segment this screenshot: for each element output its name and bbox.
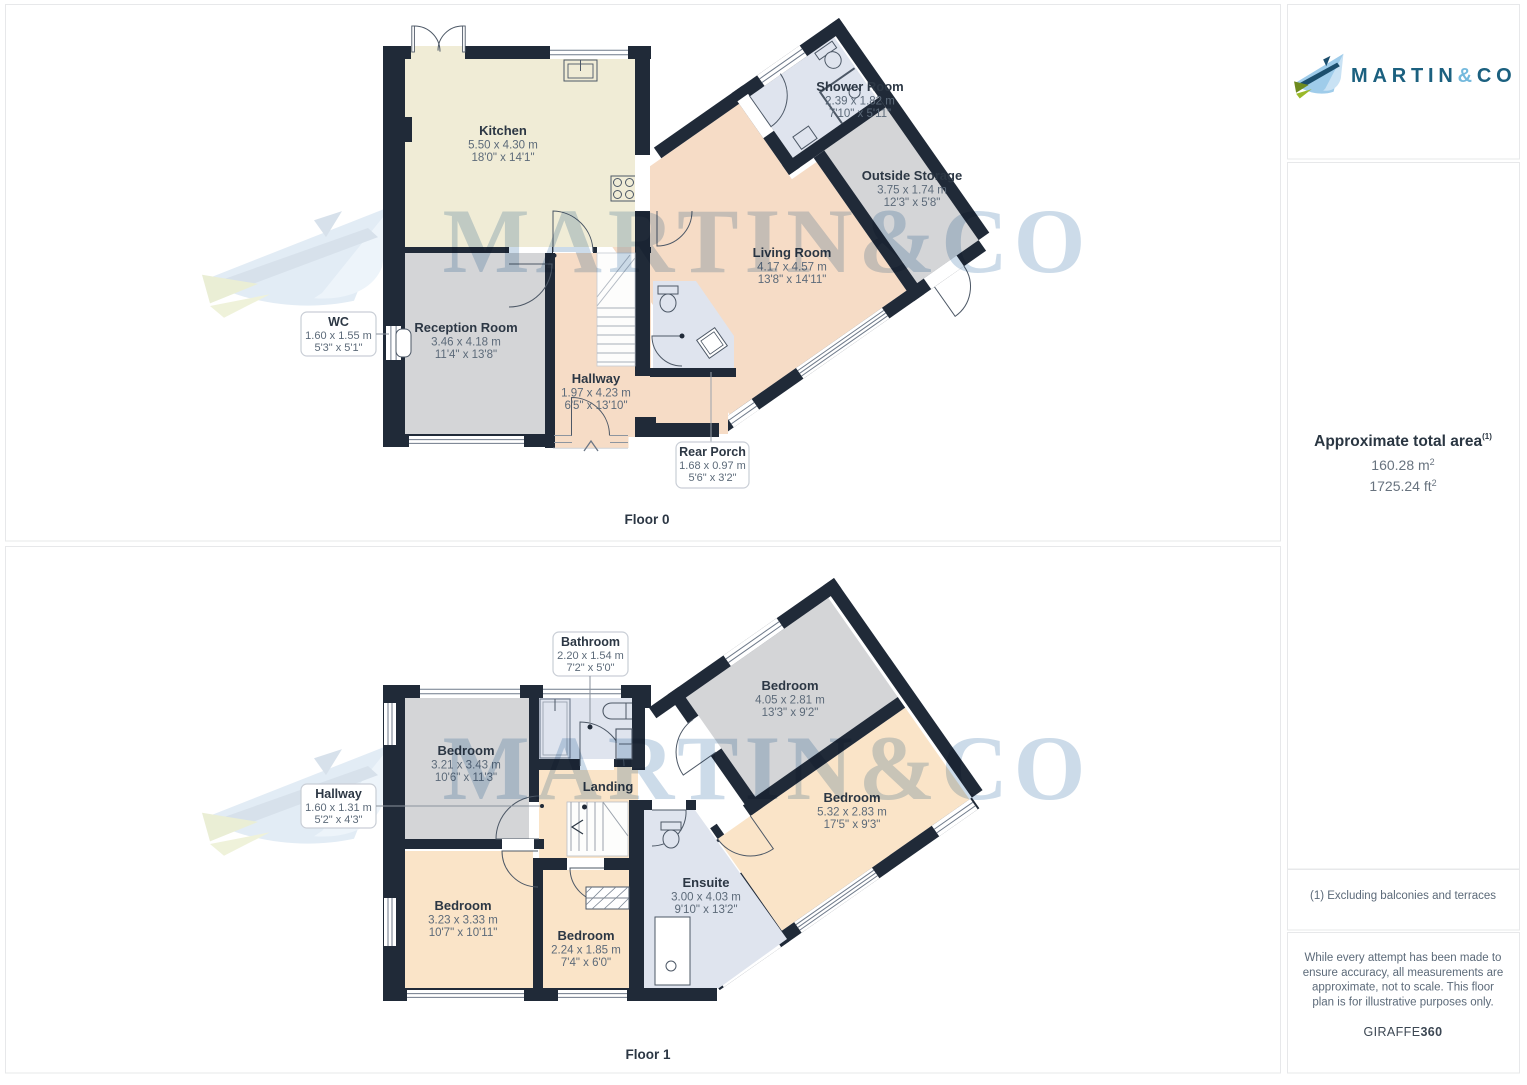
svg-text:Hallway: Hallway [572,371,621,386]
svg-text:GIRAFFE360: GIRAFFE360 [1363,1025,1442,1039]
svg-text:approximate, not to scale. Thi: approximate, not to scale. This floor [1312,982,1494,994]
svg-text:2.24 x 1.85 m: 2.24 x 1.85 m [551,945,621,957]
svg-text:17'5" x 9'3": 17'5" x 9'3" [824,819,881,831]
svg-text:1.68 x 0.97 m: 1.68 x 0.97 m [679,460,746,472]
svg-text:Reception Room: Reception Room [414,320,517,335]
svg-text:1.60 x 1.31 m: 1.60 x 1.31 m [305,802,372,814]
svg-text:160.28 m2: 160.28 m2 [1371,457,1434,473]
svg-text:9'10" x 13'2": 9'10" x 13'2" [674,904,737,916]
svg-text:5'2" x 4'3": 5'2" x 4'3" [314,814,362,826]
svg-text:Shower Room: Shower Room [816,79,903,94]
svg-text:Ensuite: Ensuite [683,875,730,890]
svg-text:Rear Porch: Rear Porch [679,445,746,459]
svg-text:5.50 x 4.30 m: 5.50 x 4.30 m [468,140,538,152]
svg-text:(1) Excluding balconies and te: (1) Excluding balconies and terraces [1310,890,1496,902]
svg-text:1725.24 ft2: 1725.24 ft2 [1369,478,1436,494]
svg-text:10'7" x 10'11": 10'7" x 10'11" [429,927,498,939]
svg-text:2.20 x 1.54 m: 2.20 x 1.54 m [557,650,624,662]
svg-text:MARTIN&CO: MARTIN&CO [443,717,1092,819]
svg-text:Outside Storage: Outside Storage [862,168,962,183]
svg-text:Bedroom: Bedroom [557,928,614,943]
svg-text:3.23 x 3.33 m: 3.23 x 3.33 m [428,915,498,927]
svg-text:7'2" x 5'0": 7'2" x 5'0" [566,662,614,674]
svg-text:4.05 x 2.81 m: 4.05 x 2.81 m [755,695,825,707]
svg-text:Kitchen: Kitchen [479,123,527,138]
svg-text:1.97 x 4.23 m: 1.97 x 4.23 m [561,388,631,400]
svg-text:7'10" x 5'11": 7'10" x 5'11" [829,108,891,120]
svg-text:7'4" x 6'0": 7'4" x 6'0" [561,957,611,969]
svg-text:Bedroom: Bedroom [761,678,818,693]
svg-text:1.60 x 1.55 m: 1.60 x 1.55 m [305,330,372,342]
svg-text:18'0" x 14'1": 18'0" x 14'1" [471,152,534,164]
svg-text:MARTIN&CO: MARTIN&CO [443,190,1092,292]
svg-text:Approximate total area(1): Approximate total area(1) [1314,432,1492,450]
svg-text:Bedroom: Bedroom [434,898,491,913]
svg-text:WC: WC [328,315,349,329]
svg-text:6'5" x 13'10": 6'5" x 13'10" [564,400,627,412]
svg-text:5'3" x 5'1": 5'3" x 5'1" [314,342,362,354]
svg-text:3.00 x 4.03 m: 3.00 x 4.03 m [671,892,741,904]
svg-text:While every attempt has been m: While every attempt has been made to [1305,952,1502,964]
svg-text:11'4" x 13'8": 11'4" x 13'8" [435,349,497,361]
svg-text:Hallway: Hallway [315,787,362,801]
svg-text:5'6" x 3'2": 5'6" x 3'2" [688,472,736,484]
svg-text:Floor 0: Floor 0 [624,512,669,527]
svg-text:ensure accuracy, all measureme: ensure accuracy, all measurements are [1303,967,1504,979]
svg-text:Floor 1: Floor 1 [625,1047,670,1062]
svg-text:plan is for illustrative purpo: plan is for illustrative purposes only. [1312,996,1493,1008]
svg-text:2.39 x 1.82 m: 2.39 x 1.82 m [825,96,895,108]
svg-text:MARTIN&CO: MARTIN&CO [1351,65,1516,87]
svg-text:3.46 x 4.18 m: 3.46 x 4.18 m [431,337,501,349]
svg-text:Bathroom: Bathroom [561,635,620,649]
